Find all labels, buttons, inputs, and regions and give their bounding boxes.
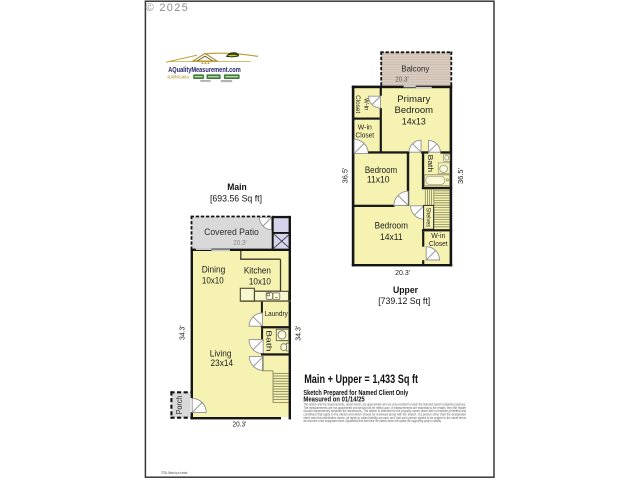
svg-text:Balcony: Balcony xyxy=(401,64,430,74)
svg-text:Closet: Closet xyxy=(429,241,448,248)
svg-text:20.3': 20.3' xyxy=(395,77,409,84)
svg-text:Main: Main xyxy=(227,182,246,192)
svg-text:Main + Upper = 1,433 Sq ft: Main + Upper = 1,433 Sq ft xyxy=(304,374,418,386)
svg-text:36.5': 36.5' xyxy=(343,168,350,184)
svg-text:Primary: Primary xyxy=(397,94,431,104)
svg-text:11x10: 11x10 xyxy=(367,175,390,185)
svg-text:Bedroom: Bedroom xyxy=(365,165,397,175)
svg-text:FLOOR PLANS &: FLOOR PLANS & xyxy=(168,75,190,80)
svg-text:Shelves: Shelves xyxy=(425,208,431,228)
svg-text:10x10: 10x10 xyxy=(202,276,224,286)
svg-text:10x10: 10x10 xyxy=(249,276,271,286)
svg-text:W-in: W-in xyxy=(363,98,370,111)
svg-text:Closet: Closet xyxy=(356,133,375,140)
svg-text:36.5': 36.5' xyxy=(458,168,465,184)
svg-text:Bedroom: Bedroom xyxy=(395,105,434,115)
svg-text:and become a site designated c: and become a site designated client. App… xyxy=(303,419,441,423)
svg-text:23x14: 23x14 xyxy=(211,358,234,368)
svg-text:20.3': 20.3' xyxy=(395,268,410,277)
svg-text:AQualityMeasurement.com: AQualityMeasurement.com xyxy=(168,65,241,74)
svg-text:TOTAL Sketch by a la mode: TOTAL Sketch by a la mode xyxy=(161,471,187,475)
svg-text:© 2025: © 2025 xyxy=(146,2,189,14)
svg-text:20.3': 20.3' xyxy=(233,419,247,428)
svg-text:Laundry: Laundry xyxy=(265,311,289,318)
svg-text:Bath: Bath xyxy=(426,155,435,173)
svg-text:[739.12 Sq ft]: [739.12 Sq ft] xyxy=(378,296,430,306)
svg-text:W-in: W-in xyxy=(431,233,445,240)
svg-text:34.3': 34.3' xyxy=(296,326,303,341)
svg-text:Kitchen: Kitchen xyxy=(244,265,271,275)
svg-text:Bath: Bath xyxy=(265,330,274,351)
svg-text:[693.56 Sq ft]: [693.56 Sq ft] xyxy=(210,194,262,204)
svg-text:Closet: Closet xyxy=(354,95,361,113)
svg-text:14x11: 14x11 xyxy=(380,232,403,242)
svg-text:20.3': 20.3' xyxy=(233,240,247,247)
svg-text:W-in: W-in xyxy=(358,125,372,132)
svg-text:Bedroom: Bedroom xyxy=(375,221,408,231)
svg-text:34.3': 34.3' xyxy=(180,325,187,340)
svg-text:14x13: 14x13 xyxy=(402,117,426,127)
svg-text:Dining: Dining xyxy=(202,265,226,275)
svg-text:Covered Patio: Covered Patio xyxy=(204,227,259,237)
svg-text:Upper: Upper xyxy=(393,285,418,296)
svg-text:Porch: Porch xyxy=(175,396,184,415)
